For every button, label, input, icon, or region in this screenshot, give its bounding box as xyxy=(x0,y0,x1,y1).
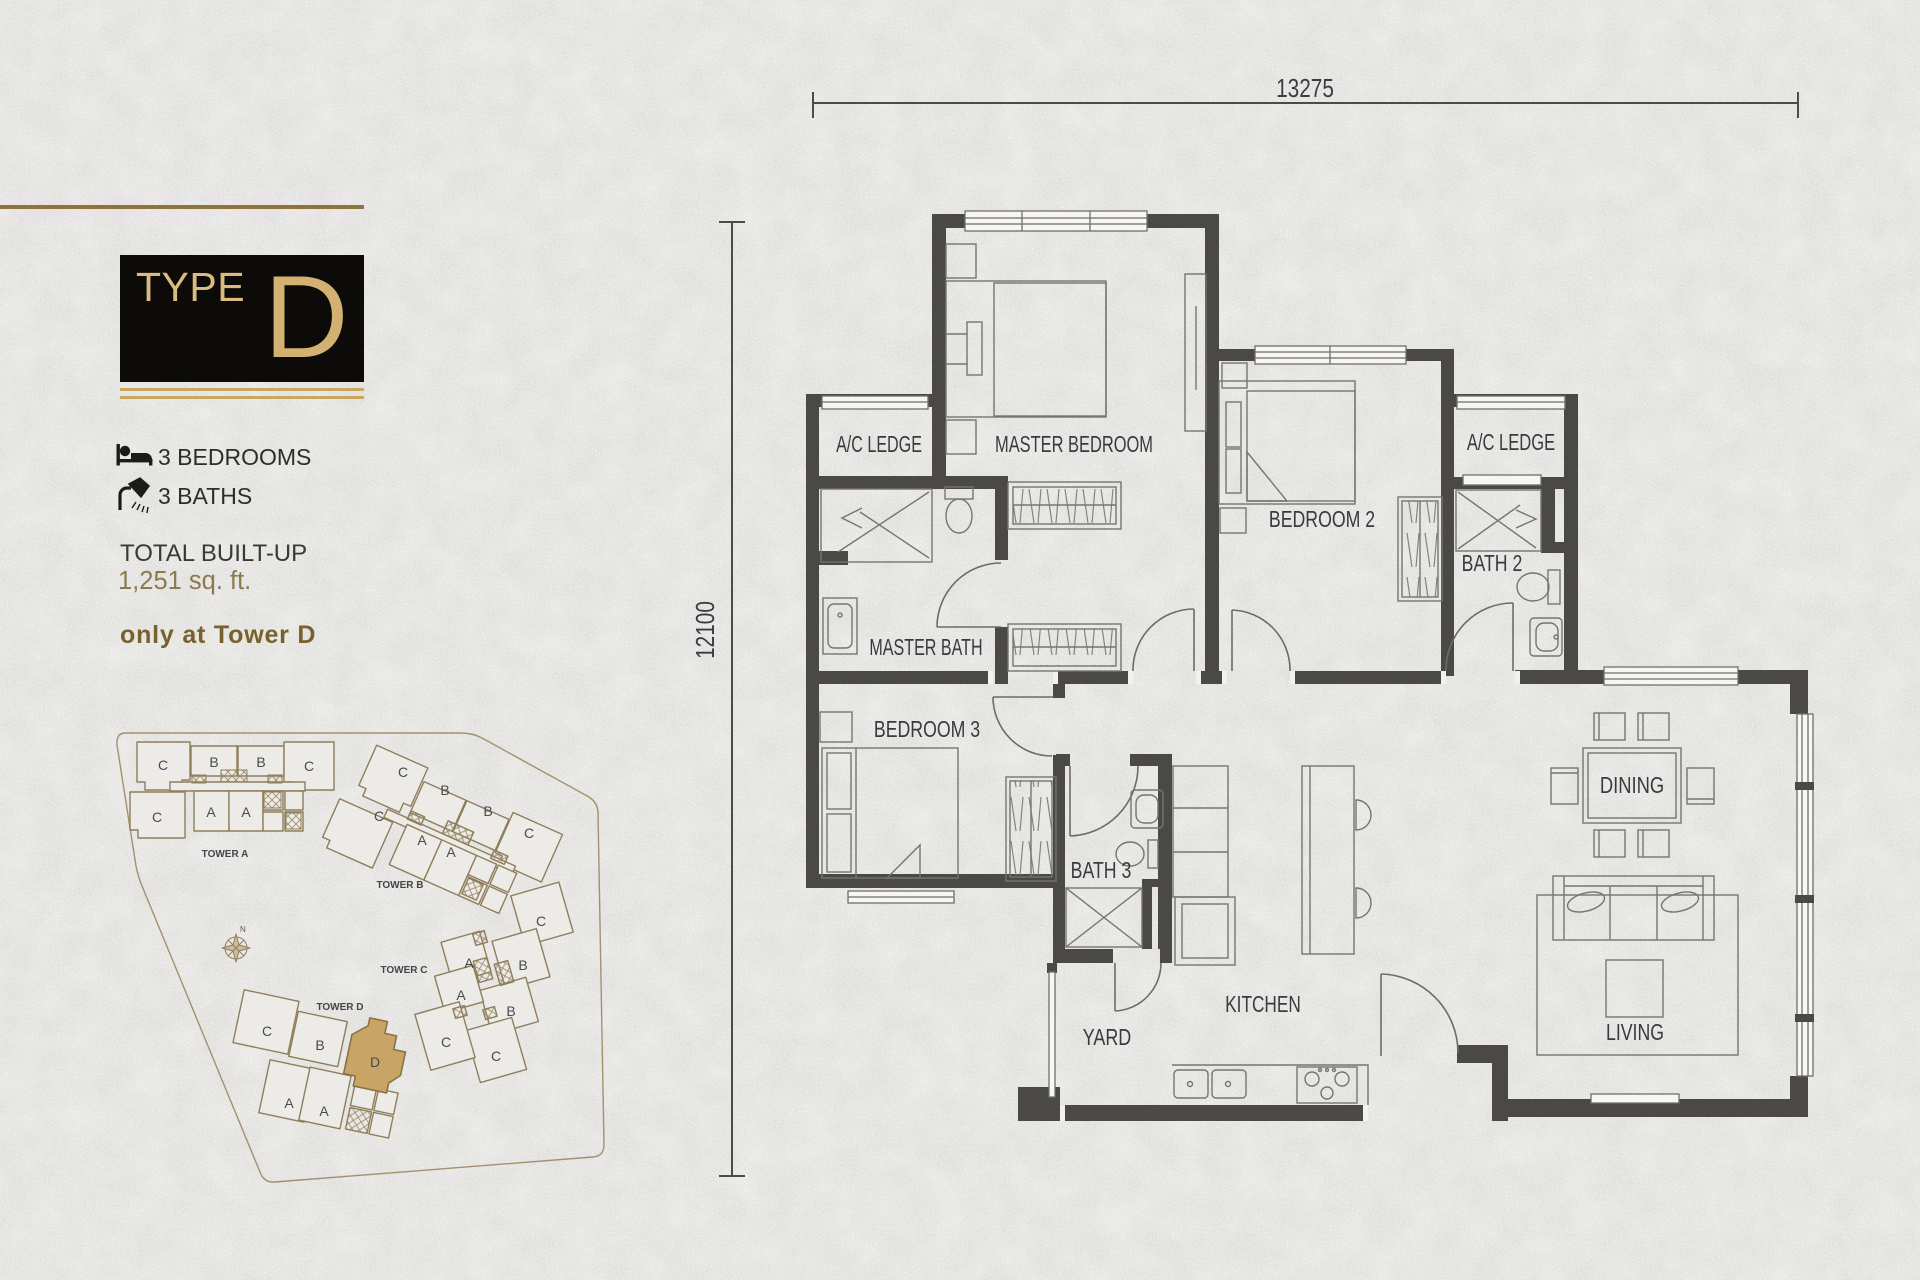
svg-text:B: B xyxy=(440,782,449,798)
svg-text:B: B xyxy=(256,754,265,770)
svg-text:C: C xyxy=(536,913,546,929)
svg-text:TYPE: TYPE xyxy=(136,264,245,310)
svg-text:13275: 13275 xyxy=(1276,74,1334,103)
svg-text:B: B xyxy=(315,1037,324,1053)
svg-text:B: B xyxy=(518,957,527,973)
svg-text:C: C xyxy=(524,825,534,841)
svg-text:N: N xyxy=(240,925,246,934)
svg-text:MASTER BEDROOM: MASTER BEDROOM xyxy=(995,432,1153,457)
svg-text:A: A xyxy=(456,987,466,1003)
svg-text:KITCHEN: KITCHEN xyxy=(1225,993,1301,1018)
svg-text:C: C xyxy=(152,809,162,825)
svg-text:C: C xyxy=(158,757,168,773)
svg-text:D: D xyxy=(264,251,349,382)
svg-text:A: A xyxy=(417,832,427,848)
svg-text:BATH 3: BATH 3 xyxy=(1071,858,1132,884)
svg-text:A: A xyxy=(464,955,474,971)
svg-text:MASTER BATH: MASTER BATH xyxy=(869,635,982,660)
svg-text:B: B xyxy=(483,803,492,819)
svg-text:TOWER B: TOWER B xyxy=(376,880,423,891)
svg-text:C: C xyxy=(374,808,384,824)
svg-text:C: C xyxy=(441,1034,451,1050)
svg-text:YARD: YARD xyxy=(1083,1025,1131,1051)
svg-text:A: A xyxy=(241,804,251,820)
svg-text:TOWER A: TOWER A xyxy=(202,849,249,860)
svg-text:BEDROOM 2: BEDROOM 2 xyxy=(1269,507,1375,533)
svg-text:only at Tower D: only at Tower D xyxy=(120,621,316,649)
svg-text:3 BEDROOMS: 3 BEDROOMS xyxy=(158,444,311,470)
svg-text:BATH 2: BATH 2 xyxy=(1462,551,1523,577)
svg-text:A: A xyxy=(319,1103,329,1119)
svg-text:1,251 sq. ft.: 1,251 sq. ft. xyxy=(118,567,251,595)
svg-text:LIVING: LIVING xyxy=(1606,1020,1664,1046)
svg-text:A: A xyxy=(446,844,456,860)
svg-text:3 BATHS: 3 BATHS xyxy=(158,483,252,509)
svg-text:A: A xyxy=(284,1095,294,1111)
svg-text:A/C LEDGE: A/C LEDGE xyxy=(1467,430,1555,455)
svg-text:C: C xyxy=(262,1023,272,1039)
svg-text:BEDROOM 3: BEDROOM 3 xyxy=(874,717,980,743)
svg-text:A/C LEDGE: A/C LEDGE xyxy=(836,432,922,457)
svg-text:TOWER D: TOWER D xyxy=(316,1002,363,1013)
svg-text:DINING: DINING xyxy=(1600,773,1664,798)
svg-text:C: C xyxy=(491,1048,501,1064)
svg-text:A: A xyxy=(206,804,216,820)
svg-text:B: B xyxy=(506,1003,515,1019)
svg-text:TOWER C: TOWER C xyxy=(380,965,427,976)
svg-text:C: C xyxy=(304,758,314,774)
svg-text:B: B xyxy=(209,754,218,770)
svg-text:12100: 12100 xyxy=(691,601,720,659)
svg-text:D: D xyxy=(370,1054,380,1070)
svg-text:TOTAL BUILT-UP: TOTAL BUILT-UP xyxy=(120,540,307,567)
svg-text:C: C xyxy=(398,764,408,780)
